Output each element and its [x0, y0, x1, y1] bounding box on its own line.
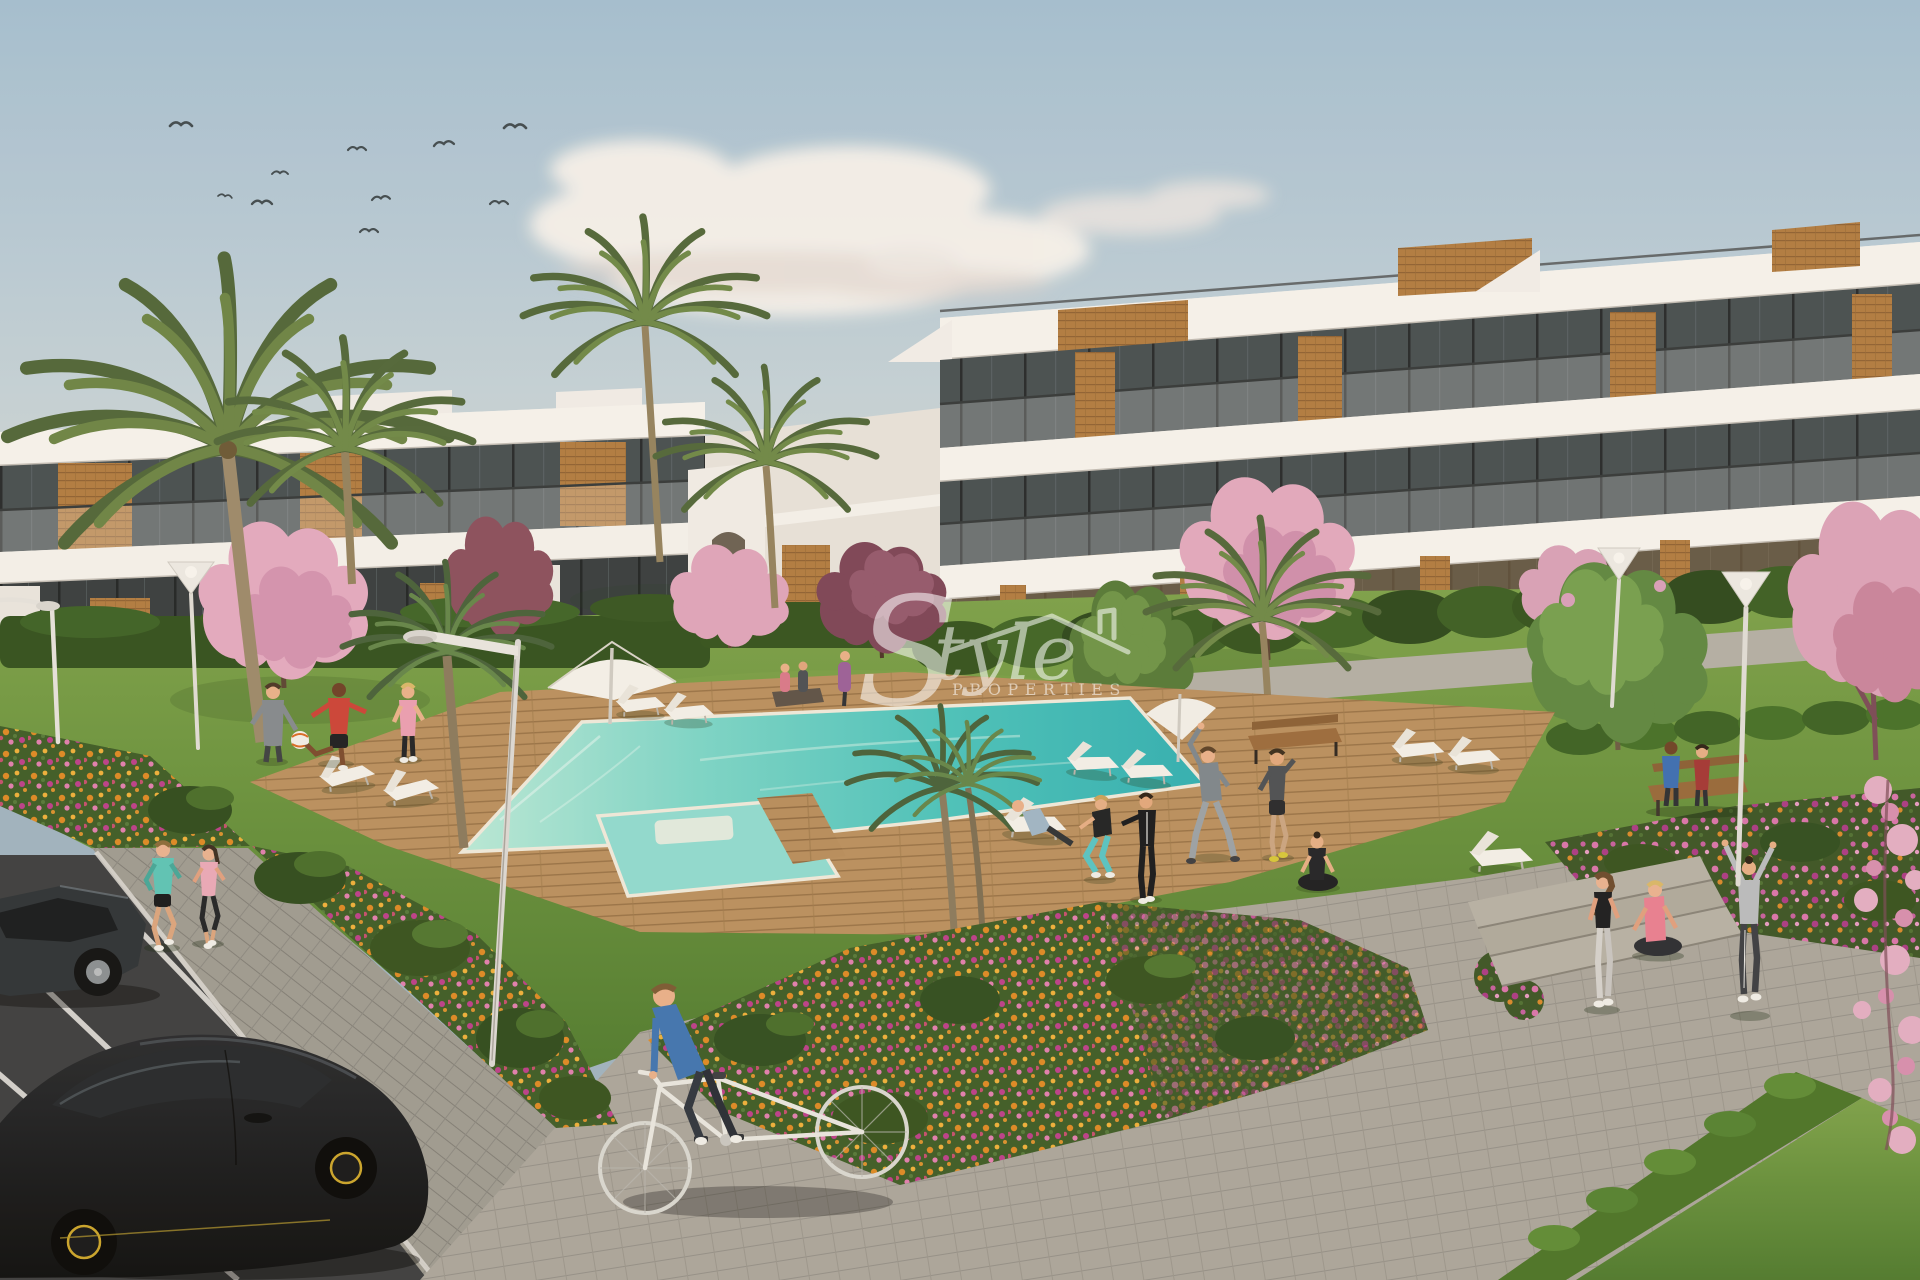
property-render-scene: S tyle PROPERTIES	[0, 0, 1920, 1280]
watermark-brand-sub: PROPERTIES	[952, 680, 1127, 699]
